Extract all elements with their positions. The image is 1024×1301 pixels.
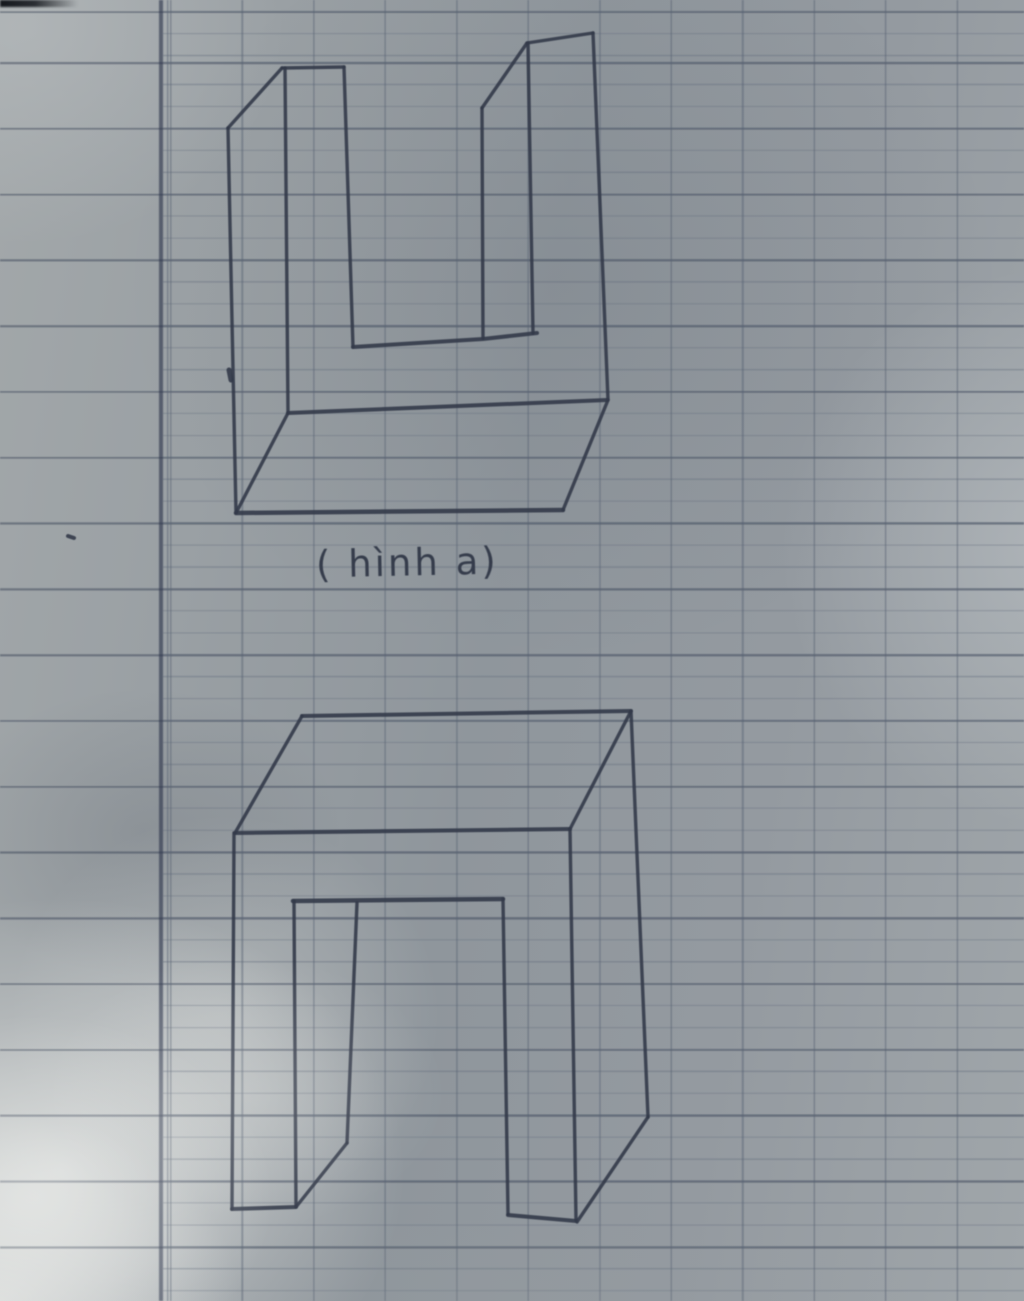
figure-a-caption: ( hình a) xyxy=(316,539,547,587)
sketch-svg xyxy=(0,0,1024,1301)
ink-smudge xyxy=(68,536,74,538)
top-left-corner-shadow xyxy=(0,0,78,7)
u-block-sketch xyxy=(228,33,608,513)
notebook-photo: ( hình a) xyxy=(0,0,1024,1301)
arch-block-sketch xyxy=(232,711,648,1222)
